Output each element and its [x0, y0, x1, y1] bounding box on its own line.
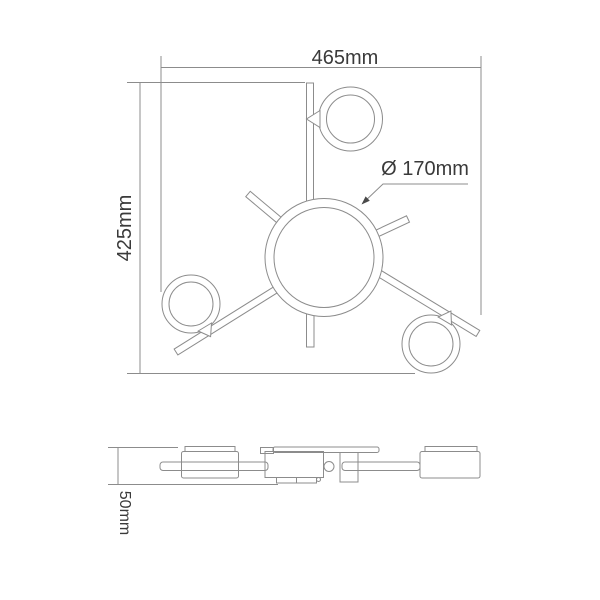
- canopy-box: [265, 452, 324, 478]
- lamp-right-top-lip: [425, 447, 477, 452]
- lamp-ring-top: [307, 87, 383, 151]
- diameter-callout: Ø 170mm: [362, 158, 469, 205]
- leader-line: [363, 184, 469, 204]
- lamp-left-top-lip: [185, 447, 235, 452]
- dimension-label-diameter: Ø 170mm: [381, 158, 469, 180]
- lamp-dimension-diagram: 465mm 425mm: [0, 0, 600, 600]
- dimension-label-side-height: 50mm: [116, 491, 133, 535]
- side-view: 50mm: [108, 447, 480, 536]
- tray-dot: [317, 478, 321, 482]
- top-view: 465mm 425mm: [114, 47, 481, 374]
- canopy-left-clip: [261, 448, 274, 454]
- technical-drawing-canvas: 465mm 425mm: [0, 0, 600, 600]
- lamp-ring-bottom-left: [162, 275, 220, 337]
- dimension-side-height: 50mm: [108, 448, 278, 536]
- screw-head: [324, 462, 334, 472]
- arm-bar-left: [160, 462, 268, 471]
- ring-outer: [319, 87, 383, 151]
- hub-outer-circle: [265, 199, 383, 317]
- lamp-left-body: [182, 452, 239, 479]
- lamp-right-body: [420, 452, 480, 479]
- support-bracket: [340, 453, 358, 483]
- dimension-label-width: 465mm: [312, 47, 379, 69]
- dimension-label-height: 425mm: [114, 195, 136, 262]
- central-hub: [265, 199, 383, 317]
- fixture-side-profile: [160, 447, 480, 484]
- lamp-ring-bottom-right: [402, 311, 460, 373]
- arm-bar-right: [342, 462, 420, 471]
- arm-top: [307, 83, 314, 218]
